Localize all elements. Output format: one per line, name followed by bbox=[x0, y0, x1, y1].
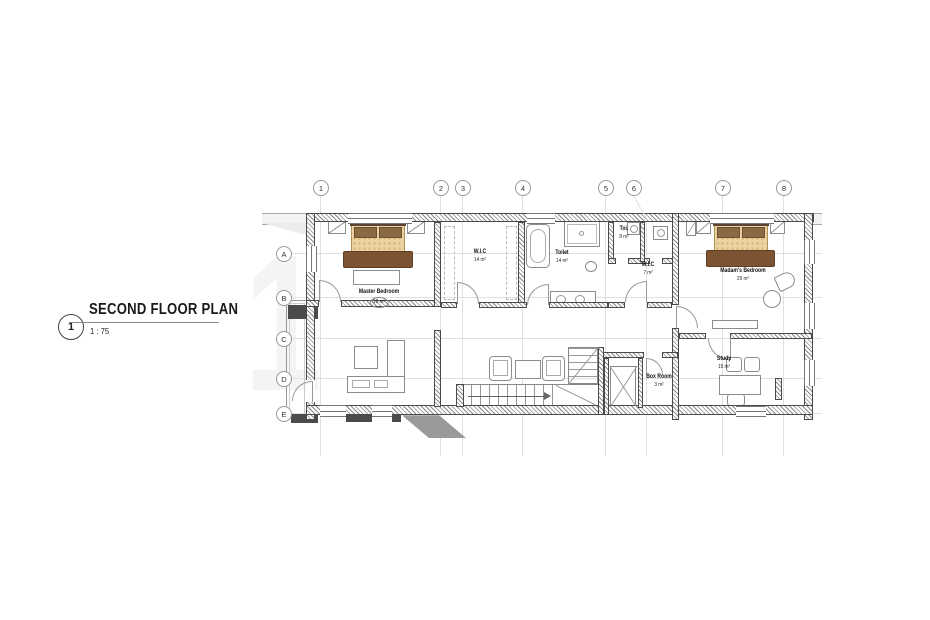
room-name: Toi. bbox=[620, 226, 629, 234]
wall-study-pier bbox=[775, 378, 782, 400]
roof-overhang-right bbox=[813, 213, 822, 225]
wall-segment bbox=[672, 213, 679, 305]
stair-direction-arrow bbox=[544, 392, 551, 400]
room-label-wic-7: W.I.C 7 m² bbox=[642, 262, 654, 277]
master-bed-bench bbox=[353, 270, 400, 285]
room-label-toi: Toi. 8 m² bbox=[619, 226, 628, 241]
wall-segment bbox=[306, 300, 319, 307]
study-desk bbox=[719, 375, 761, 395]
room-label-box-room: Box Room 3 m² bbox=[646, 374, 672, 389]
door-leaf bbox=[646, 281, 647, 302]
grid-bubble-5: 5 bbox=[598, 180, 614, 196]
window bbox=[736, 406, 766, 417]
room-name: Study bbox=[717, 356, 731, 364]
nightstand bbox=[696, 221, 711, 234]
round-chair bbox=[763, 290, 781, 308]
window bbox=[804, 360, 815, 386]
room-label-madams-bedroom: Madam's Bedroom 29 m² bbox=[720, 268, 765, 283]
stair-direction-line bbox=[468, 396, 544, 397]
room-label-study: Study 15 m² bbox=[717, 356, 731, 371]
grid-bubble-D: D bbox=[276, 371, 292, 387]
grid-bubble-A: A bbox=[276, 246, 292, 262]
sofa-cushion bbox=[352, 380, 370, 388]
wall-segment bbox=[672, 328, 679, 420]
lounge-chair bbox=[774, 270, 798, 293]
madam-bed-blanket bbox=[706, 250, 775, 267]
master-bed-pillow bbox=[379, 227, 402, 238]
grid-bubble-B: B bbox=[276, 290, 292, 306]
grid-bubble-3: 3 bbox=[455, 180, 471, 196]
room-label-master-bedroom: Master Bedroom 16 m² bbox=[359, 289, 399, 308]
wall-segment bbox=[608, 302, 625, 308]
bathtub-basin bbox=[530, 229, 546, 263]
room-area: 8 m² bbox=[619, 234, 628, 241]
room-area: 14 m² bbox=[556, 258, 568, 265]
grid-bubble-2: 2 bbox=[433, 180, 449, 196]
window bbox=[710, 213, 774, 224]
detail-number-bubble: 1 bbox=[58, 314, 84, 340]
sofa-cushion bbox=[374, 380, 388, 388]
window bbox=[372, 405, 392, 417]
title-underline bbox=[69, 322, 219, 323]
room-name: W.I.C bbox=[642, 262, 654, 270]
room-area: 14 m² bbox=[474, 257, 486, 264]
nightstand bbox=[328, 221, 346, 234]
grid-line-5 bbox=[605, 194, 606, 456]
wall-segment bbox=[647, 302, 672, 308]
window bbox=[804, 303, 815, 329]
shower-drain bbox=[579, 231, 584, 236]
armchair-seat bbox=[493, 360, 508, 376]
drawing-sheet: 1 1 SECOND FLOOR PLAN 1 : 75 1 2 3 4 5 6… bbox=[0, 0, 930, 620]
room-area: 29 m² bbox=[737, 276, 749, 283]
room-area: 3 m² bbox=[654, 382, 663, 389]
side-table bbox=[515, 360, 541, 379]
grid-line-3 bbox=[462, 194, 463, 456]
wall-segment bbox=[730, 333, 812, 339]
wardrobe bbox=[686, 221, 696, 236]
wc-toilet bbox=[585, 261, 597, 272]
wall-segment bbox=[662, 352, 678, 358]
grid-bubble-C: C bbox=[276, 331, 292, 347]
window bbox=[306, 246, 317, 272]
door-leaf bbox=[676, 306, 677, 328]
door-arc-boxroom bbox=[646, 358, 663, 375]
door-arc-toilet bbox=[527, 284, 549, 305]
room-name: W.I.C bbox=[474, 249, 486, 257]
room-name: Box Room bbox=[646, 374, 672, 382]
page-title: SECOND FLOOR PLAN bbox=[89, 301, 238, 319]
madam-bed-pillow bbox=[717, 227, 740, 238]
madam-bed-pillow bbox=[742, 227, 765, 238]
master-bed-pillow bbox=[354, 227, 377, 238]
grid-bubble-7: 7 bbox=[715, 180, 731, 196]
door-arc-master bbox=[319, 280, 341, 302]
room-name: Master Bedroom bbox=[359, 289, 399, 297]
grid-bubble-4: 4 bbox=[515, 180, 531, 196]
room-area: 15 m² bbox=[718, 364, 730, 371]
door-leaf bbox=[646, 358, 647, 375]
window bbox=[804, 240, 815, 264]
door-arc-madam bbox=[676, 306, 698, 328]
room-name: Madam's Bedroom bbox=[720, 268, 765, 276]
room-label-toilet: Toilet 14 m² bbox=[555, 250, 568, 265]
armchair-seat bbox=[546, 360, 561, 376]
drawing-scale: 1 : 75 bbox=[90, 326, 109, 336]
door-leaf bbox=[319, 280, 320, 302]
closet-outline bbox=[506, 226, 517, 300]
wc-bowl bbox=[630, 225, 638, 233]
dresser bbox=[712, 320, 758, 329]
wall-elevator-shaft bbox=[604, 358, 609, 415]
room-name: Toilet bbox=[555, 250, 568, 258]
wall-segment bbox=[434, 330, 441, 407]
door-arc-wic bbox=[457, 282, 479, 304]
room-area: 7 m² bbox=[643, 270, 652, 277]
wall-segment bbox=[608, 258, 616, 264]
wall-segment bbox=[638, 358, 643, 408]
door-leaf bbox=[548, 284, 549, 305]
wall-segment bbox=[640, 222, 645, 262]
washbasin-bowl bbox=[657, 229, 665, 237]
wall-segment bbox=[441, 302, 457, 308]
door-arc-wic-small bbox=[625, 281, 647, 302]
study-chair bbox=[744, 357, 760, 372]
wall-segment bbox=[518, 222, 525, 308]
parapet-dark-fill bbox=[346, 414, 372, 422]
master-bed-blanket bbox=[343, 251, 413, 268]
grid-bubble-8: 8 bbox=[776, 180, 792, 196]
coffee-table bbox=[354, 346, 378, 369]
window bbox=[320, 405, 346, 417]
grid-bubble-1: 1 bbox=[313, 180, 329, 196]
grid-bubble-6: 6 bbox=[626, 180, 642, 196]
wall-segment bbox=[434, 222, 441, 307]
wall-stair-stub bbox=[456, 384, 464, 407]
door-leaf bbox=[457, 282, 458, 304]
wall-segment bbox=[479, 302, 527, 308]
room-label-wic-14: W.I.C 14 m² bbox=[474, 249, 486, 264]
closet-outline bbox=[444, 226, 455, 300]
window bbox=[527, 213, 555, 224]
door-leaf bbox=[312, 381, 313, 402]
roof-shadow-bottom bbox=[402, 414, 466, 438]
wall-segment bbox=[549, 302, 608, 308]
room-area: 16 m² bbox=[370, 297, 389, 308]
parapet-dark-fill bbox=[392, 415, 401, 422]
grid-bubble-E: E bbox=[276, 406, 292, 422]
window bbox=[348, 213, 412, 224]
wall-segment bbox=[679, 333, 706, 339]
